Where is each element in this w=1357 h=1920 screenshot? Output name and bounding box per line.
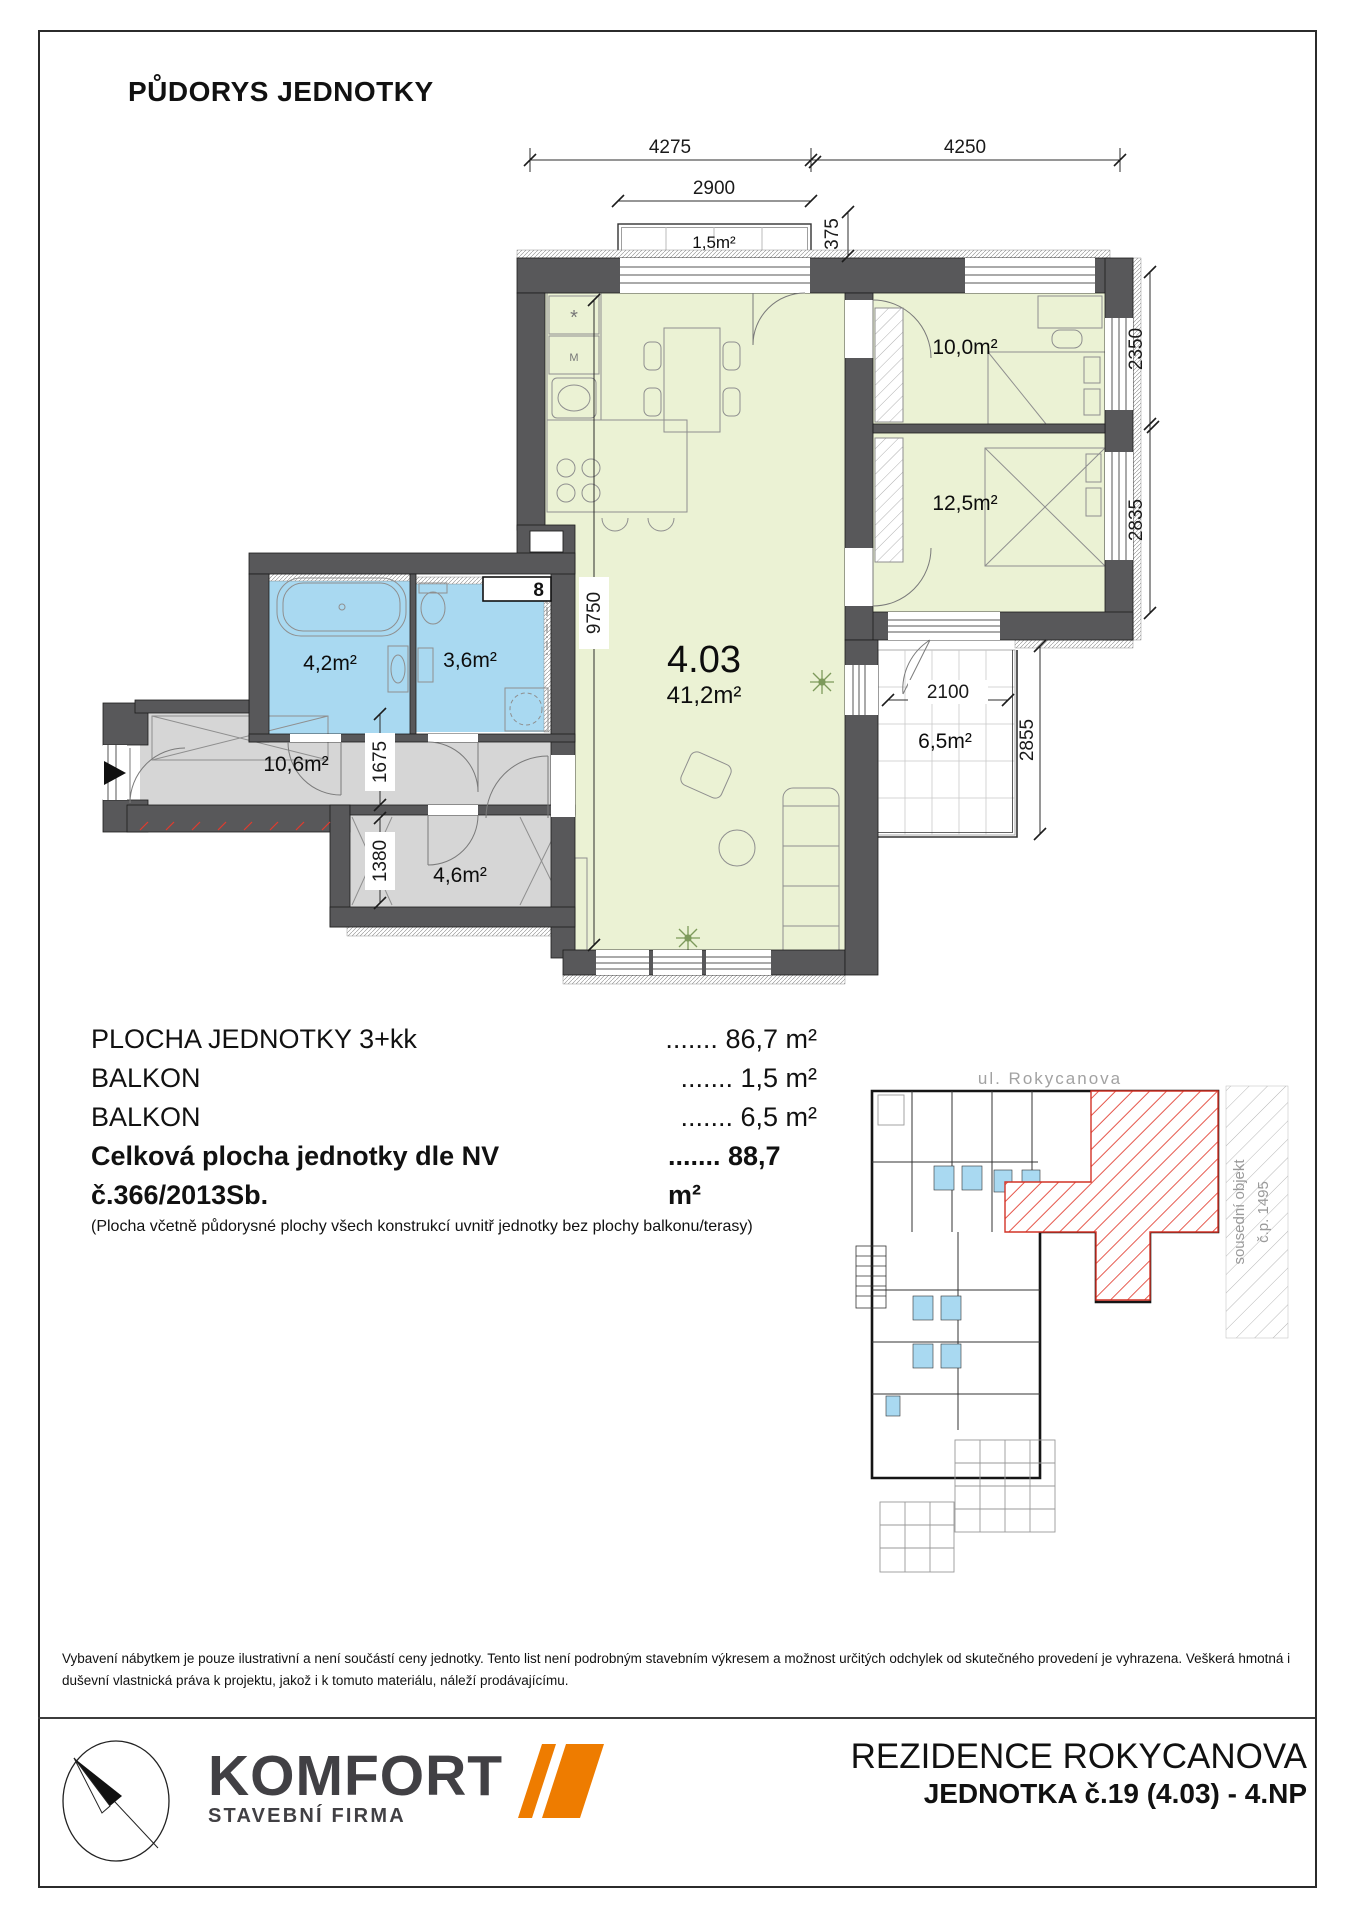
dim-living-height: 9750	[584, 592, 605, 634]
dim-hallway: 1675	[370, 741, 391, 783]
leader-dots: .......	[680, 1102, 733, 1132]
area-summary: PLOCHA JEDNOTKY 3+kk ....... 86,7 m² BAL…	[91, 1020, 817, 1236]
dim-balcony2-width: 2100	[927, 682, 969, 703]
page-title: PŮDORYS JEDNOTKY	[128, 76, 434, 108]
disclaimer-text: Vybavení nábytkem je pouze ilustrativní …	[62, 1648, 1314, 1693]
compass-icon	[56, 1736, 181, 1871]
leader-dots: .......	[680, 1063, 733, 1093]
brand-logo: KOMFORT STAVEBNÍ FIRMA	[208, 1748, 503, 1828]
brand-name: KOMFORT	[208, 1748, 503, 1805]
area-note: (Plocha včetně půdorysné plochy všech ko…	[91, 1218, 817, 1236]
dim-right-upper: 2350	[1126, 328, 1147, 370]
area-label: Celková plocha jednotky dle NV č.366/201…	[91, 1137, 668, 1215]
footer-divider	[38, 1717, 1315, 1719]
dim-balcony2-height: 2855	[1017, 719, 1038, 761]
unit-area: 41,2m²	[667, 682, 742, 709]
area-row: PLOCHA JEDNOTKY 3+kk ....... 86,7 m²	[91, 1020, 817, 1059]
leader-dots: .......	[668, 1141, 721, 1171]
area-label: BALKON	[91, 1059, 201, 1098]
site-plan: ul. Rokycanova sousední objekt č.p. 1495	[850, 1048, 1295, 1588]
label-bedroom2: 12,5m²	[932, 492, 997, 515]
label-wc: 3,6m²	[443, 649, 497, 672]
label-hallway: 10,6m²	[263, 753, 328, 776]
leader-dots: .......	[665, 1024, 718, 1054]
label-balcony-top: 1,5m²	[692, 233, 736, 252]
floor-plan-sheet: { "sheet": { "title": "PŮDORYS JEDNOTKY"…	[0, 0, 1357, 1920]
dim-top-right: 4250	[944, 137, 986, 158]
microwave-mark: M	[569, 352, 578, 364]
dim-closet: 1380	[370, 840, 391, 882]
area-value: 86,7 m²	[725, 1024, 817, 1054]
area-value: 6,5 m²	[740, 1102, 817, 1132]
dim-offset: 375	[822, 218, 843, 250]
area-row: BALKON ....... 6,5 m²	[91, 1098, 817, 1137]
bedroom-2	[873, 433, 1105, 612]
street-label: ul. Rokycanova	[978, 1069, 1122, 1088]
brand-stripes-icon	[490, 1742, 620, 1820]
dim-right-lower: 2835	[1126, 499, 1147, 541]
floor-plan: 8	[95, 108, 1265, 992]
neighbor-label-2: č.p. 1495	[1255, 1181, 1272, 1243]
label-bedroom1: 10,0m²	[932, 336, 997, 359]
area-label: BALKON	[91, 1098, 201, 1137]
project-name: REZIDENCE ROKYCANOVA	[851, 1736, 1307, 1778]
project-unit: JEDNOTKA č.19 (4.03) - 4.NP	[851, 1778, 1307, 1810]
neighbor-label-1: sousední objekt	[1231, 1159, 1248, 1265]
label-balcony-side: 6,5m²	[918, 730, 972, 753]
area-label: PLOCHA JEDNOTKY 3+kk	[91, 1020, 417, 1059]
label-bathroom: 4,2m²	[303, 652, 357, 675]
fridge-mark: *	[570, 307, 578, 329]
label-closet: 4,6m²	[433, 864, 487, 887]
brand-subtitle: STAVEBNÍ FIRMA	[208, 1805, 503, 1828]
unit-number: 4.03	[667, 639, 741, 681]
area-row: BALKON ....... 1,5 m²	[91, 1059, 817, 1098]
project-block: REZIDENCE ROKYCANOVA JEDNOTKA č.19 (4.03…	[851, 1736, 1307, 1810]
shaft-number: 8	[533, 580, 544, 601]
dim-top-left: 4275	[649, 137, 691, 158]
dim-balcony-top: 2900	[693, 178, 735, 199]
area-value: 1,5 m²	[740, 1063, 817, 1093]
area-row-total: Celková plocha jednotky dle NV č.366/201…	[91, 1137, 817, 1215]
